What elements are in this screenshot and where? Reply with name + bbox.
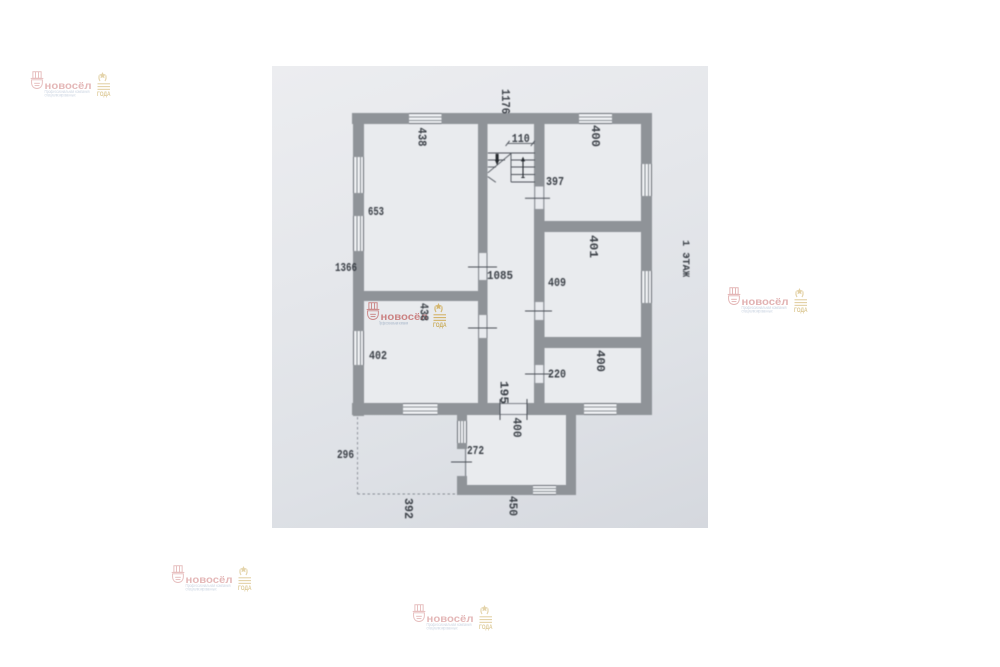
svg-text:ГОДА: ГОДА: [238, 585, 252, 592]
svg-text:специализированных: специализированных: [186, 587, 218, 592]
svg-text:409: 409: [548, 276, 566, 290]
svg-text:400: 400: [510, 418, 524, 438]
svg-text:401: 401: [586, 235, 600, 258]
svg-text:402: 402: [369, 349, 387, 363]
svg-text:392: 392: [401, 498, 415, 519]
svg-text:ГОДА: ГОДА: [479, 624, 493, 631]
svg-text:специализированных: специализированных: [742, 309, 774, 314]
svg-text:400: 400: [593, 350, 607, 372]
svg-text:1 ЭТАЖ: 1 ЭТАЖ: [679, 240, 691, 278]
svg-text:653: 653: [368, 205, 384, 219]
svg-text:438: 438: [417, 303, 431, 321]
svg-text:специализированных: специализированных: [45, 93, 77, 98]
svg-text:195: 195: [497, 381, 511, 404]
svg-text:ГОДА: ГОДА: [97, 91, 111, 98]
svg-text:272: 272: [467, 444, 484, 458]
svg-text:1085: 1085: [487, 269, 513, 283]
svg-text:450: 450: [506, 496, 520, 516]
svg-text:1366: 1366: [335, 261, 357, 275]
svg-text:ГОДА: ГОДА: [794, 307, 808, 314]
svg-text:110: 110: [512, 132, 530, 146]
svg-text:438: 438: [415, 128, 429, 147]
svg-text:400: 400: [588, 125, 602, 147]
svg-text:220: 220: [548, 368, 566, 382]
svg-text:296: 296: [337, 448, 354, 462]
svg-text:специализированных: специализированных: [426, 625, 458, 630]
svg-text:1176: 1176: [498, 89, 512, 114]
svg-text:397: 397: [546, 175, 564, 189]
